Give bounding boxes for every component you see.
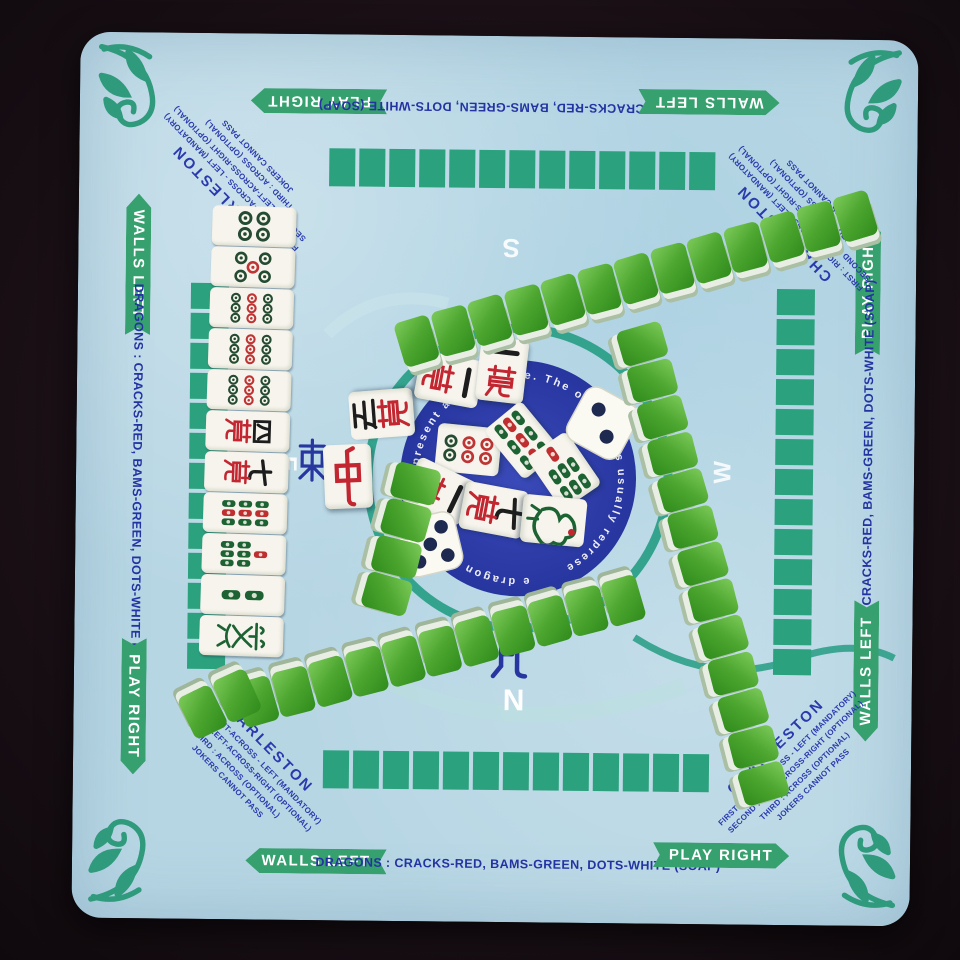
tile-7-crak[interactable] (458, 481, 530, 540)
tile-1-bam[interactable] (519, 494, 587, 548)
tile-9-dot[interactable] (208, 328, 293, 371)
tile-green-dragon[interactable] (199, 615, 284, 658)
tile-4-crak[interactable] (205, 410, 290, 453)
tile-5-dot[interactable] (210, 246, 295, 289)
wall-middle[interactable] (233, 573, 648, 728)
tile-red-dragon[interactable] (323, 443, 374, 509)
tile-7-crak[interactable] (204, 451, 289, 494)
tile-5-crak[interactable] (348, 387, 415, 440)
mahjong-mat: present a ze game. The one-bam is usuall… (71, 32, 918, 927)
tile-9-dot[interactable] (209, 287, 294, 330)
tile-9-dot[interactable] (206, 369, 291, 412)
tile-4-dot[interactable] (212, 205, 297, 248)
wall-right[interactable] (615, 320, 791, 808)
wall-middle-start[interactable] (177, 666, 265, 740)
game-pieces-layer (71, 32, 918, 927)
tile-9-bam[interactable] (203, 492, 288, 535)
tile-2-bam[interactable] (200, 574, 285, 617)
tile-7-bam[interactable] (201, 533, 286, 576)
face-up-tile-column (199, 205, 297, 658)
table-surface: present a ze game. The one-bam is usuall… (0, 0, 960, 960)
